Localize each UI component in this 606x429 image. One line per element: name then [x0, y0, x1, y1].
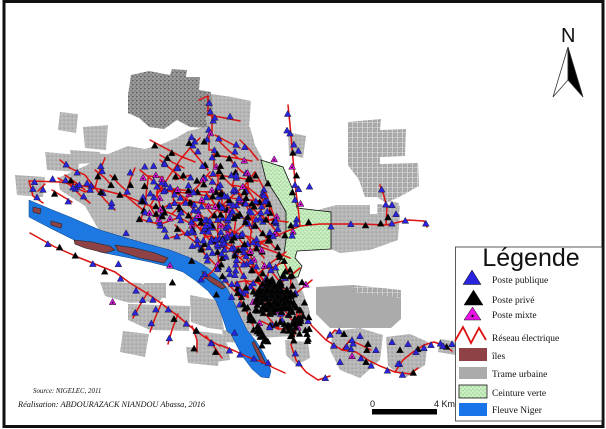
svg-text:Réseau électrique: Réseau électrique	[492, 334, 559, 344]
svg-text:Poste privé: Poste privé	[492, 296, 534, 306]
svg-text:Ceinture verte: Ceinture verte	[492, 389, 546, 399]
svg-text:îles: îles	[491, 352, 505, 362]
svg-text:4 Km: 4 Km	[434, 399, 455, 409]
svg-text:Légende: Légende	[482, 244, 579, 272]
svg-text:Source: NIGELEC, 2011: Source: NIGELEC, 2011	[33, 388, 101, 395]
svg-text:Fleuve Niger: Fleuve Niger	[492, 406, 543, 416]
svg-text:Poste mixte: Poste mixte	[492, 311, 537, 321]
svg-text:Poste publique: Poste publique	[492, 276, 548, 286]
svg-text:0: 0	[370, 399, 375, 409]
svg-text:Trame urbaine: Trame urbaine	[492, 370, 547, 380]
svg-text:N: N	[561, 25, 575, 47]
svg-text:Réalisation: ABDOURAZACK NIAND: Réalisation: ABDOURAZACK NIANDOU Abassa,…	[17, 400, 206, 409]
